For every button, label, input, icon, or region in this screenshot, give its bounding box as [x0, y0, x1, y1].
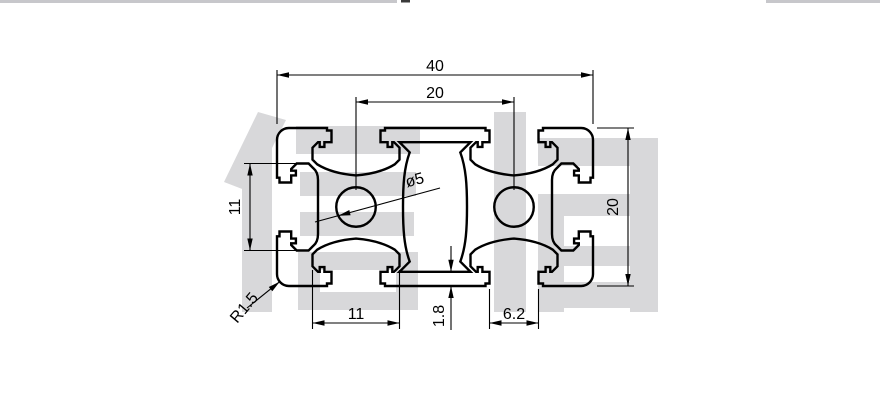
dim-slot-pitch-label: 20 [426, 85, 444, 102]
dim-hole-diameter-label: ø5 [404, 170, 427, 191]
drawing-canvas: 40 20 20 11 11 1.8 6.2 ø5 R1.5 [0, 0, 880, 420]
technical-drawing: 40 20 20 11 11 1.8 6.2 ø5 R1.5 [0, 0, 880, 420]
dim-side-chamber-label: 11 [227, 199, 244, 216]
dim-overall-height-label: 20 [605, 198, 622, 216]
dim-overall-width-label: 40 [426, 58, 444, 75]
dim-bottom-chamber-label: 11 [348, 306, 365, 323]
dim-slot-opening-label: 6.2 [503, 306, 525, 323]
dim-wall-thickness-label: 1.8 [431, 305, 448, 327]
border-tick [401, 0, 410, 3]
top-border-strip [0, 0, 880, 3]
